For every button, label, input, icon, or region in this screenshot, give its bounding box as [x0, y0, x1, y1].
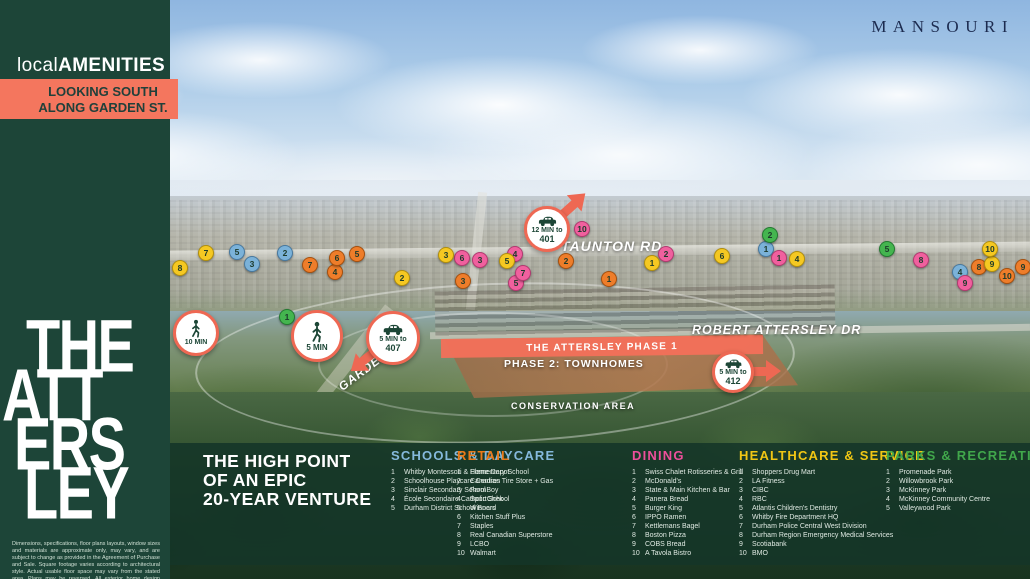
- legend-item-dining-5: 5Burger King: [632, 504, 752, 513]
- legend-item-number: 1: [391, 468, 404, 477]
- legend-item-name: Durham Region Emergency Medical Services: [752, 531, 894, 540]
- legend-item-number: 3: [457, 486, 470, 495]
- legend-item-name: A Tavola Bistro: [645, 549, 752, 558]
- map-marker-healthcare-1: 1: [644, 255, 660, 271]
- drive-time-badge-401: 12 MIN to 401: [524, 206, 570, 252]
- legend-item-name: FarmBoy: [470, 486, 572, 495]
- legend-item-retail-1: 1Home Depot: [457, 468, 572, 477]
- map-marker-parks-1: 1: [279, 309, 295, 325]
- legend-item-name: State & Main Kitchen & Bar: [645, 486, 752, 495]
- map-marker-dining-9: 9: [957, 275, 973, 291]
- map-marker-healthcare-9: 9: [984, 256, 1000, 272]
- legend-item-number: 2: [457, 477, 470, 486]
- legend-item-name: Kitchen Stuff Plus: [470, 513, 572, 522]
- legend-item-retail-3: 3FarmBoy: [457, 486, 572, 495]
- legend-item-number: 7: [632, 522, 645, 531]
- map-marker-healthcare-8: 8: [172, 260, 188, 276]
- map-marker-retail-1: 1: [601, 271, 617, 287]
- map-marker-healthcare-10: 10: [982, 241, 998, 257]
- legend-item-name: Winners: [470, 504, 572, 513]
- tagline: THE HIGH POINT OF AN EPIC 20-YEAR VENTUR…: [203, 452, 371, 509]
- legend-item-retail-7: 7Staples: [457, 522, 572, 531]
- attersley-logo-row: LEY: [24, 468, 141, 520]
- legend-item-retail-4: 4SportChek: [457, 495, 572, 504]
- legend-header-parks: PARKS & RECREATION: [886, 448, 1021, 463]
- amenities-map-poster: TAUNTON RD ROBERT ATTERSLEY DR GARDEN ST…: [0, 0, 1030, 579]
- phase1-banner-label: THE ATTERSLEY PHASE 1: [526, 341, 678, 354]
- legend-item-name: Durham Police Central West Division: [752, 522, 894, 531]
- legend-item-retail-8: 8Real Canadian Superstore: [457, 531, 572, 540]
- legend-item-name: Staples: [470, 522, 572, 531]
- legend-item-number: 6: [457, 513, 470, 522]
- map-marker-schools-5: 5: [229, 244, 245, 260]
- badge-label: 5 MIN: [306, 344, 327, 352]
- legend-item-number: 7: [739, 522, 752, 531]
- legend-panel: THE HIGH POINT OF AN EPIC 20-YEAR VENTUR…: [170, 443, 1030, 565]
- map-marker-dining-7: 7: [515, 265, 531, 281]
- walk-time-badge-5min: 5 MIN: [291, 310, 343, 362]
- map-marker-retail-2: 2: [558, 253, 574, 269]
- map-marker-retail-3: 3: [455, 273, 471, 289]
- legend-item-healthcare-5: 5Atlantis Children's Dentistry: [739, 504, 894, 513]
- map-marker-retail-9: 9: [1015, 259, 1030, 275]
- mansouri-logo: MANSOURI: [871, 17, 1014, 37]
- map-marker-healthcare-2: 2: [394, 270, 410, 286]
- legend-item-number: 9: [457, 540, 470, 549]
- legend-item-retail-6: 6Kitchen Stuff Plus: [457, 513, 572, 522]
- road-label-robert-attersley: ROBERT ATTERSLEY DR: [692, 323, 861, 337]
- map-marker-healthcare-4: 4: [789, 251, 805, 267]
- legend-item-healthcare-2: 2LA Fitness: [739, 477, 894, 486]
- legend-item-name: Whitby Fire Department HQ: [752, 513, 894, 522]
- map-marker-parks-2: 2: [762, 227, 778, 243]
- legend-category-dining: DINING1Swiss Chalet Rotisseries & Grill2…: [632, 448, 752, 558]
- walk-time-badge-10min: 10 MIN: [173, 310, 219, 356]
- legend-item-name: Panera Bread: [645, 495, 752, 504]
- legend-item-retail-10: 10Walmart: [457, 549, 572, 558]
- legend-item-number: 3: [632, 486, 645, 495]
- legend-item-number: 5: [391, 504, 404, 513]
- legend-item-healthcare-8: 8Durham Region Emergency Medical Service…: [739, 531, 894, 540]
- legend-item-number: 7: [457, 522, 470, 531]
- legend-item-name: Walmart: [470, 549, 572, 558]
- legend-item-number: 2: [886, 477, 899, 486]
- legend-item-name: LCBO: [470, 540, 572, 549]
- map-marker-dining-1: 1: [771, 250, 787, 266]
- badge-label: 10 MIN: [185, 339, 208, 347]
- conservation-area-label: CONSERVATION AREA: [511, 401, 635, 411]
- legend-item-number: 1: [886, 468, 899, 477]
- legend-item-dining-10: 10A Tavola Bistro: [632, 549, 752, 558]
- legend-item-healthcare-4: 4RBC: [739, 495, 894, 504]
- legend-item-dining-4: 4Panera Bread: [632, 495, 752, 504]
- legend-item-name: Boston Pizza: [645, 531, 752, 540]
- legend-item-number: 4: [739, 495, 752, 504]
- legend-item-dining-7: 7Kettlemans Bagel: [632, 522, 752, 531]
- view-banner-line: ALONG GARDEN ST.: [32, 100, 174, 116]
- map-marker-retail-6: 6: [329, 250, 345, 266]
- legend-item-dining-3: 3State & Main Kitchen & Bar: [632, 486, 752, 495]
- legend-item-number: 6: [632, 513, 645, 522]
- legend-item-name: Valleywood Park: [899, 504, 1021, 513]
- legend-item-number: 4: [457, 495, 470, 504]
- legend-item-healthcare-7: 7Durham Police Central West Division: [739, 522, 894, 531]
- phase2-label: PHASE 2: TOWNHOMES: [504, 358, 644, 370]
- legend-item-name: Shoppers Drug Mart: [752, 468, 894, 477]
- phase1-banner: THE ATTERSLEY PHASE 1: [441, 335, 763, 358]
- legend-item-number: 10: [739, 549, 752, 558]
- legend-item-number: 5: [886, 504, 899, 513]
- legal-disclaimer: Dimensions, specifications, floor plans …: [12, 541, 160, 579]
- legend-item-number: 4: [886, 495, 899, 504]
- legend-item-name: Atlantis Children's Dentistry: [752, 504, 894, 513]
- badge-highway: 407: [385, 344, 400, 353]
- legend-item-number: 4: [632, 495, 645, 504]
- walk-icon: [308, 321, 326, 344]
- map-marker-dining-2: 2: [658, 246, 674, 262]
- legend-item-name: Home Depot: [470, 468, 572, 477]
- legend-item-name: LA Fitness: [752, 477, 894, 486]
- legend-item-number: 2: [391, 477, 404, 486]
- legend-item-retail-9: 9LCBO: [457, 540, 572, 549]
- badge-highway: 412: [725, 377, 740, 386]
- legend-item-dining-6: 6IPPO Ramen: [632, 513, 752, 522]
- legend-item-name: Willowbrook Park: [899, 477, 1021, 486]
- legend-item-number: 9: [632, 540, 645, 549]
- legend-item-parks-4: 4McKinney Community Centre: [886, 495, 1021, 504]
- tagline-line: THE HIGH POINT: [203, 452, 371, 471]
- map-marker-retail-5: 5: [349, 246, 365, 262]
- badge-highway: 401: [539, 235, 554, 244]
- legend-item-healthcare-9: 9Scotiabank: [739, 540, 894, 549]
- sidebar: localAMENITIES LOOKING SOUTH ALONG GARDE…: [0, 0, 170, 579]
- legend-item-number: 10: [457, 549, 470, 558]
- legend-item-name: Promenade Park: [899, 468, 1021, 477]
- legend-category-retail: RETAIL1Home Depot2Canadian Tire Store + …: [457, 448, 572, 558]
- legend-item-number: 2: [632, 477, 645, 486]
- car-icon: [381, 323, 405, 336]
- legend-item-number: 5: [457, 504, 470, 513]
- legend-item-name: BMO: [752, 549, 894, 558]
- map-marker-healthcare-7: 7: [198, 245, 214, 261]
- map-marker-healthcare-3: 3: [438, 247, 454, 263]
- legend-item-dining-2: 2McDonald's: [632, 477, 752, 486]
- legend-item-number: 1: [457, 468, 470, 477]
- map-marker-schools-3: 3: [244, 256, 260, 272]
- map-marker-schools-2: 2: [277, 245, 293, 261]
- attersley-logo: THE ATT ERS LEY: [0, 322, 170, 518]
- legend-category-parks: PARKS & RECREATION1Promenade Park2Willow…: [886, 448, 1021, 513]
- legend-item-number: 6: [739, 513, 752, 522]
- car-icon: [724, 358, 743, 369]
- legend-item-name: IPPO Ramen: [645, 513, 752, 522]
- map-marker-retail-4: 4: [327, 264, 343, 280]
- legend-item-number: 3: [886, 486, 899, 495]
- legend-item-name: RBC: [752, 495, 894, 504]
- legend-item-dining-1: 1Swiss Chalet Rotisseries & Grill: [632, 468, 752, 477]
- local-amenities-title: localAMENITIES: [17, 55, 165, 77]
- legend-item-name: Real Canadian Superstore: [470, 531, 572, 540]
- map-marker-parks-5: 5: [879, 241, 895, 257]
- legend-item-retail-5: 5Winners: [457, 504, 572, 513]
- legend-item-parks-1: 1Promenade Park: [886, 468, 1021, 477]
- legend-item-name: Burger King: [645, 504, 752, 513]
- legend-item-name: Canadian Tire Store + Gas: [470, 477, 572, 486]
- map-marker-retail-10: 10: [999, 268, 1015, 284]
- legend-header-healthcare: HEALTHCARE & SERVICE: [739, 448, 894, 463]
- legend-item-dining-8: 8Boston Pizza: [632, 531, 752, 540]
- legend-item-retail-2: 2Canadian Tire Store + Gas: [457, 477, 572, 486]
- map-marker-healthcare-5: 5: [499, 253, 515, 269]
- legend-item-name: Kettlemans Bagel: [645, 522, 752, 531]
- legend-category-healthcare: HEALTHCARE & SERVICE1Shoppers Drug Mart2…: [739, 448, 894, 558]
- legend-item-name: COBS Bread: [645, 540, 752, 549]
- legend-item-healthcare-10: 10BMO: [739, 549, 894, 558]
- legend-item-dining-9: 9COBS Bread: [632, 540, 752, 549]
- drive-time-badge-412: 5 MIN to 412: [712, 351, 754, 393]
- legend-item-name: Swiss Chalet Rotisseries & Grill: [645, 468, 752, 477]
- tagline-line: OF AN EPIC: [203, 471, 371, 490]
- legend-item-name: McKinney Park: [899, 486, 1021, 495]
- legend-item-parks-3: 3McKinney Park: [886, 486, 1021, 495]
- legend-header-retail: RETAIL: [457, 448, 572, 463]
- legend-item-name: McDonald's: [645, 477, 752, 486]
- legend-item-parks-5: 5Valleywood Park: [886, 504, 1021, 513]
- legend-item-number: 5: [739, 504, 752, 513]
- legend-item-number: 1: [632, 468, 645, 477]
- legend-item-number: 8: [457, 531, 470, 540]
- map-marker-healthcare-6: 6: [714, 248, 730, 264]
- legend-item-healthcare-6: 6Whitby Fire Department HQ: [739, 513, 894, 522]
- road-label-taunton: TAUNTON RD: [561, 238, 662, 254]
- legend-item-name: SportChek: [470, 495, 572, 504]
- legend-item-number: 3: [391, 486, 404, 495]
- legend-item-healthcare-1: 1Shoppers Drug Mart: [739, 468, 894, 477]
- view-banner-line: LOOKING SOUTH: [32, 84, 174, 100]
- map-marker-dining-3: 3: [472, 252, 488, 268]
- map-marker-dining-8: 8: [913, 252, 929, 268]
- legend-item-number: 3: [739, 486, 752, 495]
- walk-icon: [188, 319, 204, 339]
- legend-item-name: Scotiabank: [752, 540, 894, 549]
- legend-item-number: 10: [632, 549, 645, 558]
- legend-item-number: 8: [739, 531, 752, 540]
- legend-item-number: 8: [632, 531, 645, 540]
- legend-header-dining: DINING: [632, 448, 752, 463]
- car-icon: [537, 215, 558, 227]
- view-direction-banner: LOOKING SOUTH ALONG GARDEN ST.: [0, 79, 178, 119]
- local-amenities-title-bold: AMENITIES: [58, 55, 165, 76]
- legend-item-number: 5: [632, 504, 645, 513]
- tagline-line: 20-YEAR VENTURE: [203, 490, 371, 509]
- map-marker-dining-6: 6: [454, 250, 470, 266]
- legend-item-number: 4: [391, 495, 404, 504]
- map-marker-dining-10: 10: [574, 221, 590, 237]
- drive-time-badge-407: 5 MIN to 407: [366, 311, 420, 365]
- legend-item-name: McKinney Community Centre: [899, 495, 1021, 504]
- legend-item-number: 2: [739, 477, 752, 486]
- legend-item-parks-2: 2Willowbrook Park: [886, 477, 1021, 486]
- legend-item-healthcare-3: 3CIBC: [739, 486, 894, 495]
- local-amenities-title-light: local: [17, 55, 58, 76]
- legend-item-number: 9: [739, 540, 752, 549]
- legend-item-name: CIBC: [752, 486, 894, 495]
- map-marker-retail-7: 7: [302, 257, 318, 273]
- legend-item-number: 1: [739, 468, 752, 477]
